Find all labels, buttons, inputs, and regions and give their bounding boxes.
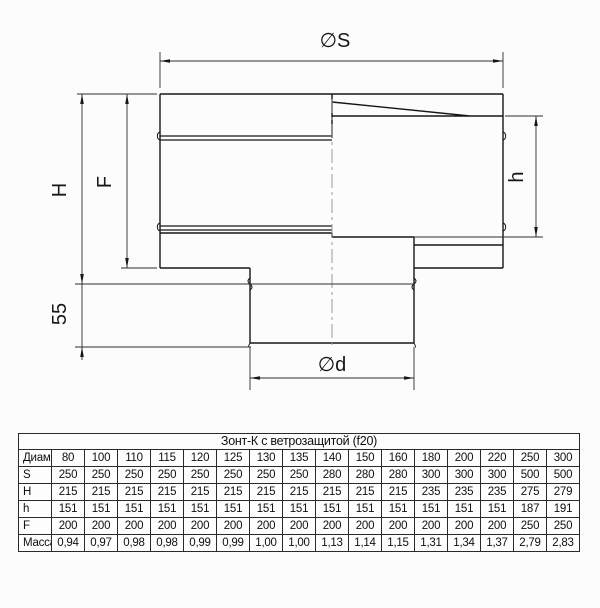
- row-label-cell: Масса 0,5: [19, 535, 52, 552]
- table-cell: 250: [250, 467, 283, 484]
- row-label-cell: H: [19, 484, 52, 501]
- table-cell: 215: [316, 484, 349, 501]
- edge-notches: [157, 132, 505, 348]
- table-row: F200200200200200200200200200200200200200…: [19, 518, 580, 535]
- diameter-header-cell: 120: [184, 450, 217, 467]
- table-cell: 300: [415, 467, 448, 484]
- table-cell: 235: [415, 484, 448, 501]
- table-cell: 200: [481, 518, 514, 535]
- table-cell: 250: [514, 518, 547, 535]
- table-cell: 151: [349, 501, 382, 518]
- table-cell: 200: [85, 518, 118, 535]
- table-row: S250250250250250250250250280280280300300…: [19, 467, 580, 484]
- table-cell: 200: [283, 518, 316, 535]
- table-cell: 250: [85, 467, 118, 484]
- table-cell: 280: [382, 467, 415, 484]
- table-cell: 250: [118, 467, 151, 484]
- table-cell: 235: [448, 484, 481, 501]
- table-cell: 151: [316, 501, 349, 518]
- row-label-cell: S: [19, 467, 52, 484]
- dim-label-height-h: h: [506, 171, 528, 182]
- table-row: h151151151151151151151151151151151151151…: [19, 501, 580, 518]
- table-cell: 500: [514, 467, 547, 484]
- table-cell: 0,97: [85, 535, 118, 552]
- table-cell: 0,99: [217, 535, 250, 552]
- table-cell: 151: [85, 501, 118, 518]
- dim-label-height-H: H: [49, 183, 71, 197]
- page: { "drawing": { "labels": { "phi_s": "∅S"…: [0, 0, 600, 608]
- table-cell: 1,00: [283, 535, 316, 552]
- table-cell: 151: [415, 501, 448, 518]
- table-cell: 250: [52, 467, 85, 484]
- table-cell: 250: [217, 467, 250, 484]
- table-cell: 191: [547, 501, 580, 518]
- table-cell: 151: [448, 501, 481, 518]
- table-cell: 215: [349, 484, 382, 501]
- table-cell: 500: [547, 467, 580, 484]
- table-cell: 215: [382, 484, 415, 501]
- table-cell: 0,98: [118, 535, 151, 552]
- row-label-cell: h: [19, 501, 52, 518]
- table-cell: 200: [250, 518, 283, 535]
- table-cell: 250: [283, 467, 316, 484]
- diameter-header-cell: 140: [316, 450, 349, 467]
- table-cell: 215: [217, 484, 250, 501]
- diameter-header-cell: 250: [514, 450, 547, 467]
- table-cell: 200: [448, 518, 481, 535]
- table-cell: 151: [217, 501, 250, 518]
- table-cell: 235: [481, 484, 514, 501]
- table-cell: 215: [52, 484, 85, 501]
- diameter-header-cell: 110: [118, 450, 151, 467]
- table-cell: 215: [250, 484, 283, 501]
- table-cell: 275: [514, 484, 547, 501]
- table-cell: 200: [52, 518, 85, 535]
- table-cell: 1,14: [349, 535, 382, 552]
- table-cell: 200: [184, 518, 217, 535]
- table-cell: 300: [481, 467, 514, 484]
- dim-label-height-F: F: [94, 176, 116, 188]
- body-outline: [160, 94, 503, 343]
- diameter-header-cell: 180: [415, 450, 448, 467]
- diameter-header-cell: 150: [349, 450, 382, 467]
- table-cell: 0,98: [151, 535, 184, 552]
- table-cell: 151: [250, 501, 283, 518]
- table-cell: 250: [184, 467, 217, 484]
- table-row: Масса 0,50,940,970,980,980,990,991,001,0…: [19, 535, 580, 552]
- table-cell: 200: [151, 518, 184, 535]
- diameter-header-cell: 125: [217, 450, 250, 467]
- table-header-row: Диаметр801001101151201251301351401501601…: [19, 450, 580, 467]
- diameter-header-cell: 130: [250, 450, 283, 467]
- diameter-header-cell: 200: [448, 450, 481, 467]
- table-cell: 215: [118, 484, 151, 501]
- dim-label-diameter-d: ∅d: [318, 354, 347, 376]
- header-label-cell: Диаметр: [19, 450, 52, 467]
- diameter-header-cell: 220: [481, 450, 514, 467]
- table-cell: 1,00: [250, 535, 283, 552]
- table-cell: 215: [151, 484, 184, 501]
- table-cell: 1,34: [448, 535, 481, 552]
- table-cell: 151: [118, 501, 151, 518]
- diameter-header-cell: 80: [52, 450, 85, 467]
- table-cell: 280: [349, 467, 382, 484]
- table-cell: 151: [283, 501, 316, 518]
- table-cell: 200: [382, 518, 415, 535]
- table-cell: 279: [547, 484, 580, 501]
- table-cell: 1,13: [316, 535, 349, 552]
- dim-label-diameter-S: ∅S: [320, 30, 351, 52]
- technical-drawing: ∅S H F 55 h ∅d: [0, 0, 600, 430]
- table-cell: 1,15: [382, 535, 415, 552]
- table-cell: 215: [283, 484, 316, 501]
- table-title: Зонт-К с ветрозащитой (f20): [19, 434, 580, 450]
- table-cell: 2,83: [547, 535, 580, 552]
- table-cell: 151: [481, 501, 514, 518]
- table-row: H215215215215215215215215215215215235235…: [19, 484, 580, 501]
- table-cell: 215: [85, 484, 118, 501]
- diameter-header-cell: 100: [85, 450, 118, 467]
- table-cell: 200: [118, 518, 151, 535]
- dimension-arrowheads: [80, 59, 538, 380]
- table-cell: 2,79: [514, 535, 547, 552]
- table-cell: 300: [448, 467, 481, 484]
- table-title-row: Зонт-К с ветрозащитой (f20): [19, 434, 580, 450]
- table-cell: 280: [316, 467, 349, 484]
- table-cell: 200: [316, 518, 349, 535]
- diameter-header-cell: 300: [547, 450, 580, 467]
- table-cell: 250: [547, 518, 580, 535]
- table-cell: 151: [151, 501, 184, 518]
- table-cell: 1,31: [415, 535, 448, 552]
- table-cell: 151: [52, 501, 85, 518]
- table-cell: 0,94: [52, 535, 85, 552]
- spec-table: Зонт-К с ветрозащитой (f20) Диаметр80100…: [18, 433, 580, 552]
- table-cell: 250: [151, 467, 184, 484]
- table-cell: 151: [382, 501, 415, 518]
- row-label-cell: F: [19, 518, 52, 535]
- table-cell: 1,37: [481, 535, 514, 552]
- table-cell: 200: [415, 518, 448, 535]
- table-cell: 0,99: [184, 535, 217, 552]
- table-cell: 215: [184, 484, 217, 501]
- table-cell: 200: [349, 518, 382, 535]
- diameter-header-cell: 160: [382, 450, 415, 467]
- table-cell: 187: [514, 501, 547, 518]
- dim-label-offset-55: 55: [49, 303, 71, 325]
- table-cell: 200: [217, 518, 250, 535]
- seam-lines: [160, 136, 332, 230]
- table-cell: 151: [184, 501, 217, 518]
- diameter-header-cell: 115: [151, 450, 184, 467]
- diameter-header-cell: 135: [283, 450, 316, 467]
- dimension-lines: [75, 52, 543, 390]
